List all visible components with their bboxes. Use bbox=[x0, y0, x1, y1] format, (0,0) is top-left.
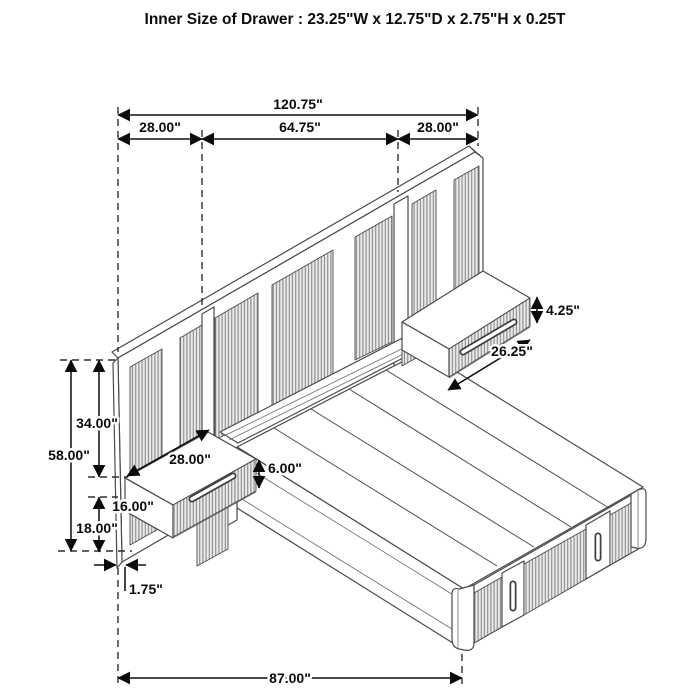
bed-foot-right-post bbox=[631, 489, 646, 549]
dim-label-left-nightstand-height: 6.00" bbox=[268, 460, 302, 476]
headboard-slat-band bbox=[355, 216, 392, 360]
dim-label-right-nightstand-width: 26.25" bbox=[491, 343, 533, 359]
dim-label-total-width: 120.75" bbox=[273, 96, 322, 112]
dim-label-upper-height: 34.00" bbox=[76, 415, 118, 431]
dim-label-bed-length: 87.00" bbox=[269, 670, 311, 686]
dim-label-center-section: 64.75" bbox=[279, 119, 321, 135]
headboard-slat-band bbox=[454, 166, 479, 293]
dim-label-mount-gap: 16.00" bbox=[112, 498, 154, 514]
bed-foot-left-post bbox=[452, 585, 474, 650]
bed-dimension-diagram: 120.75" 28.00" 64.75" 28.00" 58.00" 34.0… bbox=[0, 0, 700, 700]
dim-label-right-section: 28.00" bbox=[417, 119, 459, 135]
dim-label-left-section: 28.00" bbox=[139, 119, 181, 135]
diagram-page: 120.75" 28.00" 64.75" 28.00" 58.00" 34.0… bbox=[0, 0, 700, 700]
dim-label-left-nightstand-width: 28.00" bbox=[169, 451, 211, 467]
dim-label-under-nightstand: 18.00" bbox=[76, 520, 118, 536]
dim-label-headboard-height: 58.00" bbox=[48, 447, 90, 463]
dim-label-thickness: 1.75" bbox=[129, 581, 163, 597]
page-title: Inner Size of Drawer : 23.25"W x 12.75"D… bbox=[145, 11, 566, 28]
dim-label-right-nightstand-height: 4.25" bbox=[546, 302, 580, 318]
